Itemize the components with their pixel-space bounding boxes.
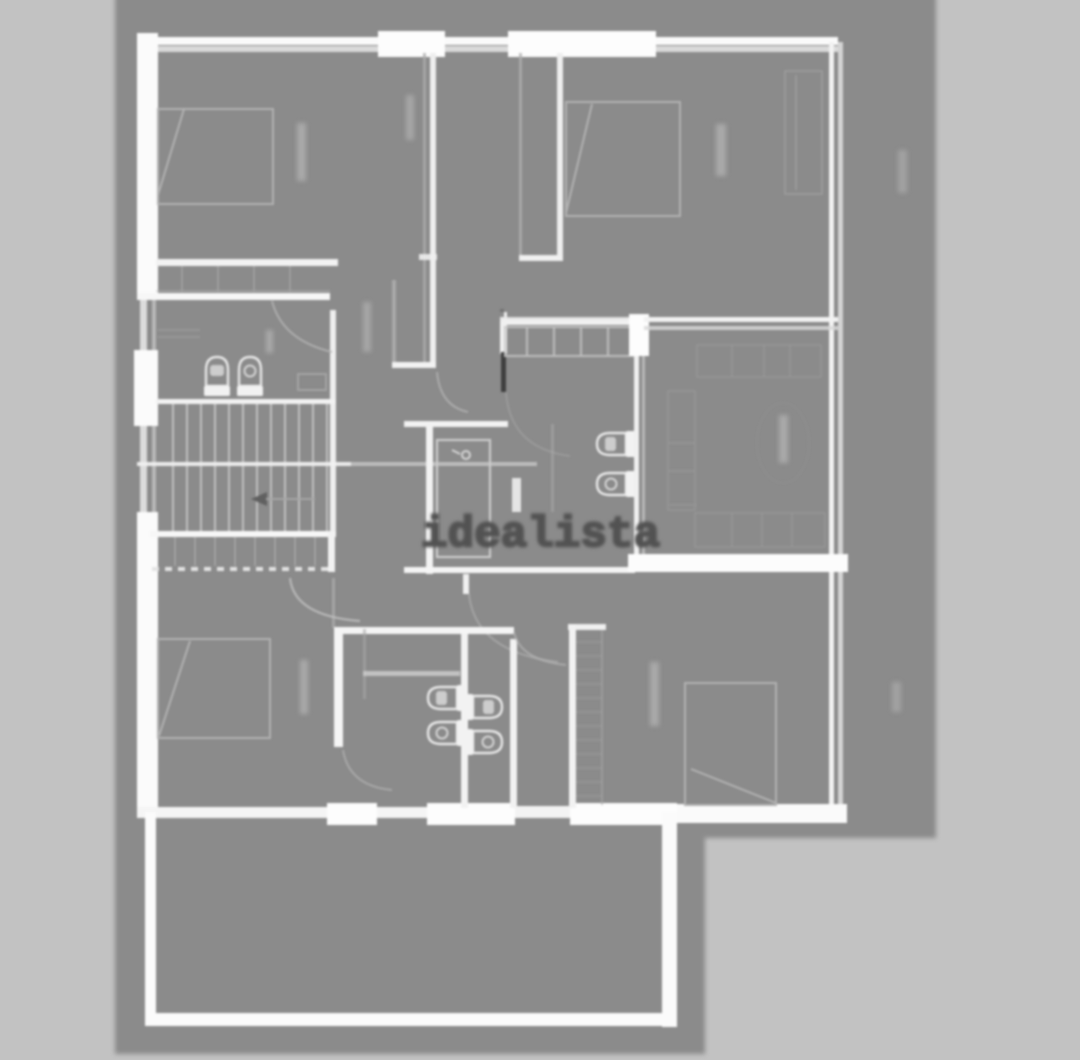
svg-text:idealista: idealista [421,510,660,560]
